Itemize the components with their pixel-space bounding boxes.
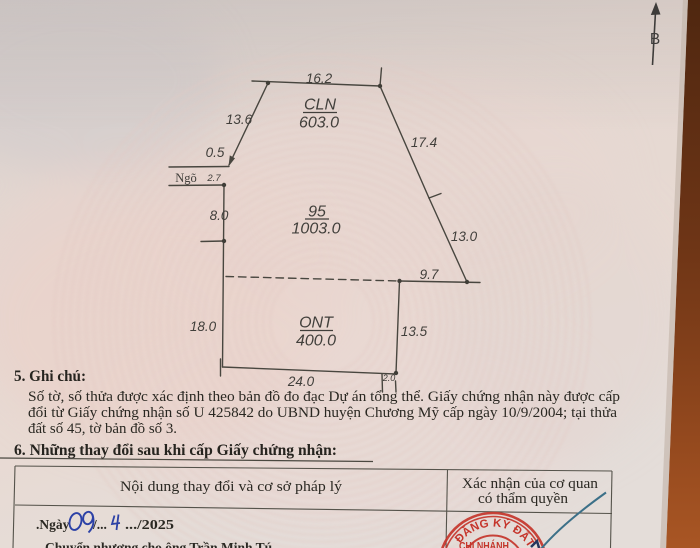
svg-text:ONT: ONT — [299, 315, 334, 332]
svg-text:Ngõ: Ngõ — [175, 171, 197, 185]
svg-text:có thẩm quyền: có thẩm quyền — [478, 491, 569, 507]
svg-text:6. Những thay đổi sau khi cấp: 6. Những thay đổi sau khi cấp Giấy chứng… — [14, 442, 337, 459]
svg-text:16.2: 16.2 — [306, 71, 333, 86]
svg-text:Chuyển nhượng cho ông Trần Min: Chuyển nhượng cho ông Trần Minh Tú — [45, 540, 273, 548]
svg-text:13.5: 13.5 — [401, 324, 428, 339]
svg-text:2.7: 2.7 — [206, 173, 221, 184]
svg-text:CHI NHÁNH: CHI NHÁNH — [459, 540, 509, 548]
svg-text:B: B — [650, 31, 660, 48]
svg-text:5. Ghi chú:: 5. Ghi chú: — [14, 368, 86, 385]
svg-text:Xác nhận của cơ quan: Xác nhận của cơ quan — [462, 476, 599, 492]
svg-text:1003.0: 1003.0 — [292, 221, 341, 238]
svg-text:0.5: 0.5 — [206, 145, 225, 160]
svg-text:17.4: 17.4 — [411, 135, 437, 150]
svg-text:13.6: 13.6 — [226, 112, 253, 127]
svg-text:.../2025: .../2025 — [125, 517, 174, 532]
svg-text:đất số 45, tờ bản đồ số 3.: đất số 45, tờ bản đồ số 3. — [28, 421, 177, 437]
svg-text:Nội dung thay đổi và cơ sở phá: Nội dung thay đổi và cơ sở pháp lý — [120, 479, 343, 495]
svg-text:9.7: 9.7 — [420, 267, 439, 282]
svg-text:CLN: CLN — [304, 97, 336, 114]
svg-text:Số tờ, số thửa được xác định t: Số tờ, số thửa được xác định theo bản đồ… — [28, 389, 620, 405]
svg-text:400.0: 400.0 — [296, 333, 336, 350]
svg-text:18.0: 18.0 — [190, 319, 217, 334]
svg-text:đổi từ Giấy chứng nhận số U 42: đổi từ Giấy chứng nhận số U 425842 do UB… — [28, 405, 617, 421]
svg-text:2.0: 2.0 — [382, 373, 396, 383]
svg-text:24.0: 24.0 — [287, 374, 315, 389]
svg-text:95: 95 — [308, 204, 326, 221]
svg-text:.Ngày: .Ngày — [36, 517, 70, 532]
svg-text:13.0: 13.0 — [451, 229, 478, 244]
svg-text:8.0: 8.0 — [210, 208, 229, 223]
svg-text:603.0: 603.0 — [299, 115, 339, 132]
